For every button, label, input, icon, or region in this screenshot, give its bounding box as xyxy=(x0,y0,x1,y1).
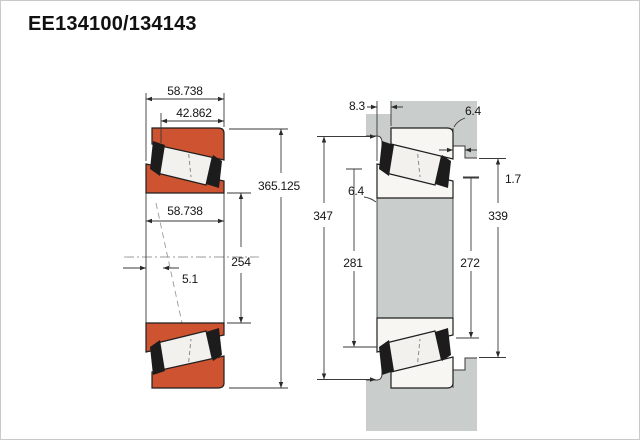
right-view-mounting: 8.3 6.4 6.4 1.7 347 339 281 xyxy=(313,99,521,431)
dim-cup-backing: 339 xyxy=(488,209,508,223)
left-view-cross-section: 58.738 42.862 365.125 58.738 254 5.1 xyxy=(123,84,301,388)
dim-cone-corner-radius: 6.4 xyxy=(348,184,365,198)
arrows-offset xyxy=(140,266,169,270)
arrows-cone-backing xyxy=(469,332,473,338)
bearing-diagram: 58.738 42.862 365.125 58.738 254 5.1 xyxy=(1,1,639,439)
leader-cone-corner-radius xyxy=(364,197,376,202)
dim-housing-shoulder: 347 xyxy=(313,209,333,223)
dim-shaft-shoulder: 281 xyxy=(343,256,363,270)
dim-cone-backing: 272 xyxy=(460,256,480,270)
dim-cup-width-outer: 58.738 xyxy=(167,84,203,98)
dim-backing-clearance: 1.7 xyxy=(505,172,522,186)
dim-cup-width-inner: 42.862 xyxy=(176,106,212,120)
dim-lines-cup-backing xyxy=(479,159,506,358)
arrows-shaft-shoulder xyxy=(352,341,356,347)
dim-cone-width: 58.738 xyxy=(167,204,203,218)
dim-bore-diameter: 254 xyxy=(231,255,251,269)
dim-cup-corner-radius: 6.4 xyxy=(465,104,482,118)
page-title: EE134100/134143 xyxy=(28,13,197,36)
dim-front-gap: 8.3 xyxy=(349,99,366,113)
dim-outer-diameter: 365.125 xyxy=(258,179,301,193)
dim-center-offset: 5.1 xyxy=(182,272,199,286)
catalog-page: EE134100/134143 58.7 xyxy=(0,0,640,440)
shaft xyxy=(377,198,453,318)
